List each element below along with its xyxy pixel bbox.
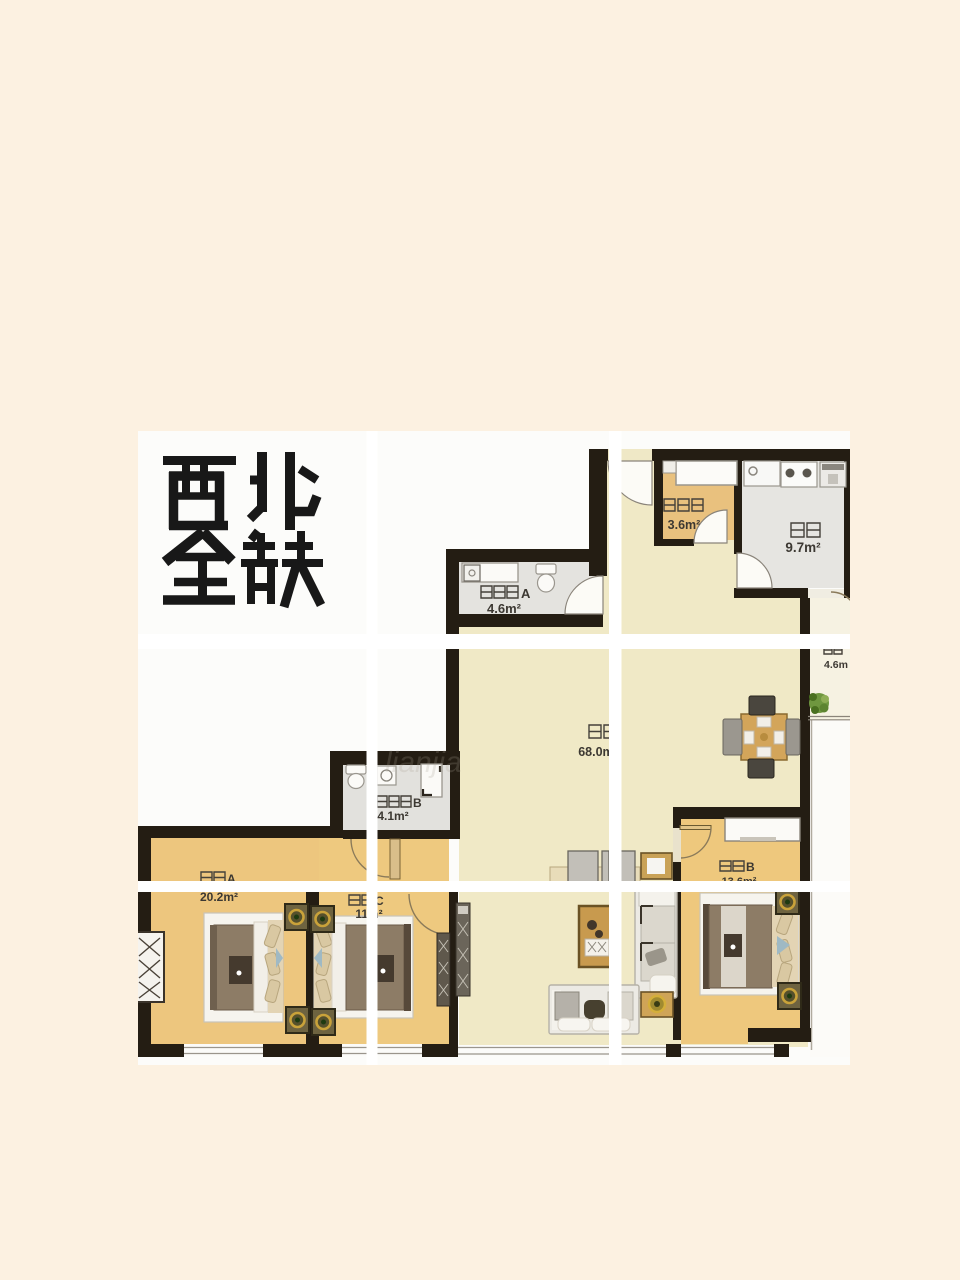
svg-text:9.7m²: 9.7m² — [785, 540, 821, 555]
svg-text:20.2m²: 20.2m² — [200, 890, 238, 904]
svg-text:4.6m²: 4.6m² — [487, 601, 522, 616]
svg-text:B: B — [746, 860, 755, 874]
svg-text:B: B — [413, 796, 422, 810]
svg-text:A: A — [521, 586, 531, 601]
svg-text:lianjia: lianjia — [385, 746, 462, 779]
svg-text:4.1m²: 4.1m² — [377, 809, 408, 823]
svg-text:3.6m²: 3.6m² — [668, 518, 701, 532]
svg-text:4.6m: 4.6m — [824, 659, 848, 671]
